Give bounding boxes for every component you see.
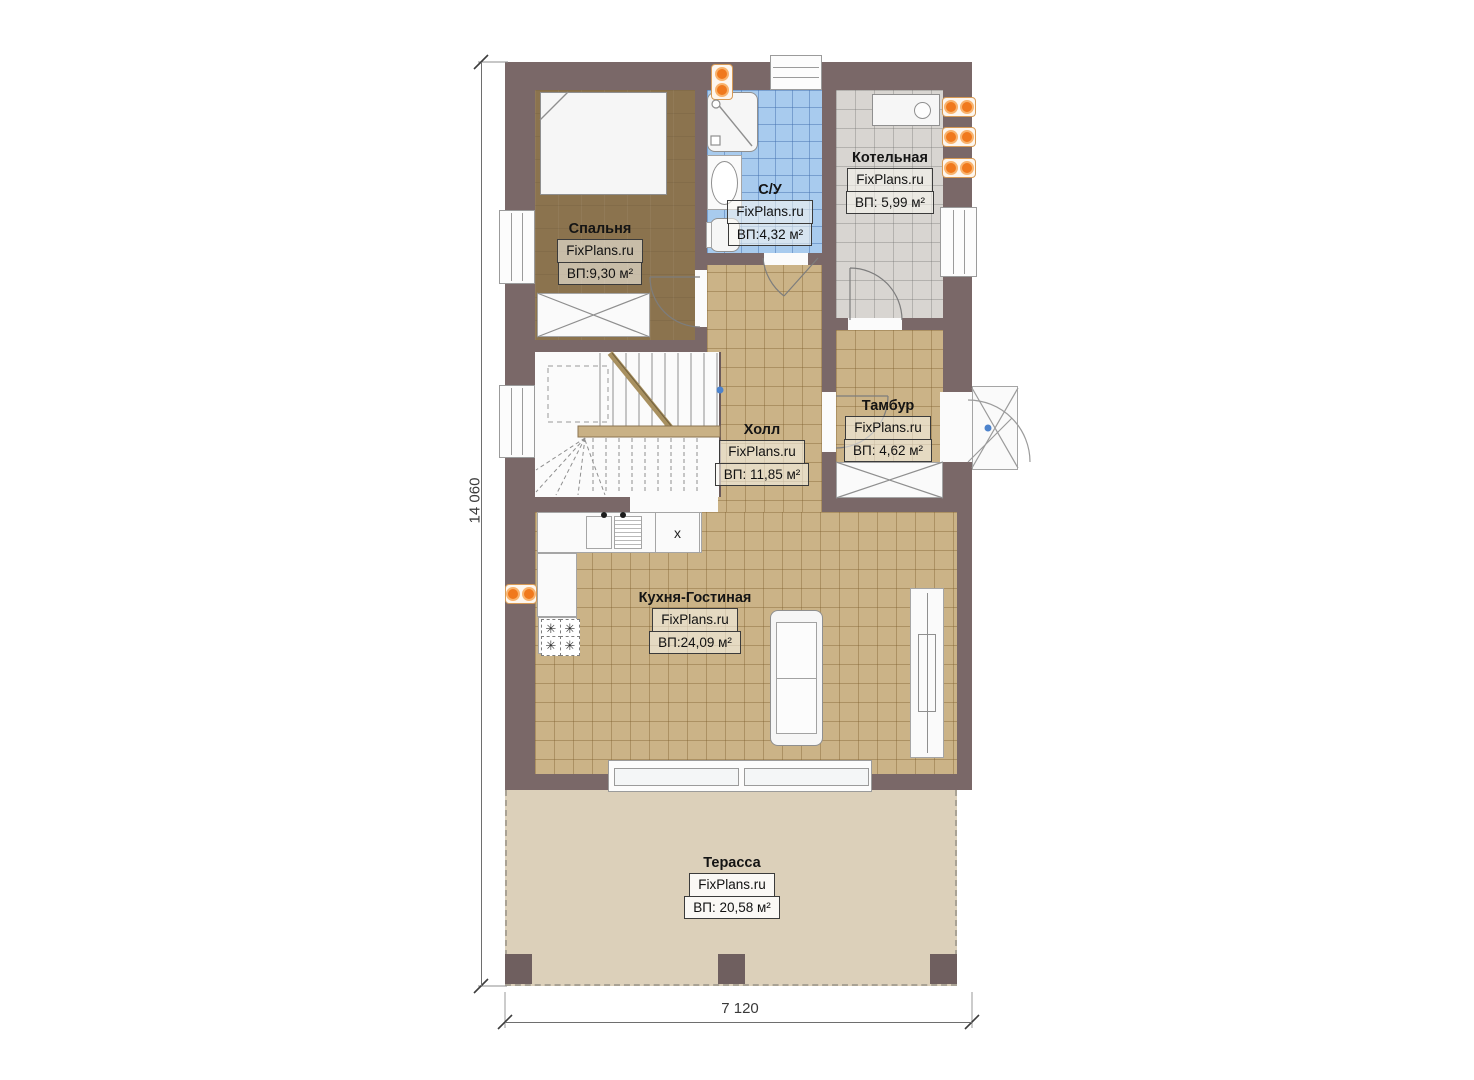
dimension-height-label: 14 060 — [467, 466, 484, 536]
window-bathroom-top — [770, 55, 822, 90]
terrace-post-right — [930, 954, 957, 984]
room-label-hall: Холл FixPlans.ru ВП: 11,85 м² — [697, 422, 827, 486]
kitchen-counter-left — [537, 553, 577, 617]
watermark: FixPlans.ru — [845, 416, 931, 440]
watermark: FixPlans.ru — [727, 200, 813, 224]
room-area: ВП: 11,85 м² — [715, 463, 810, 487]
sink-tap-dot — [601, 512, 607, 518]
watermark: FixPlans.ru — [719, 440, 805, 464]
hall-kitchen-opening — [630, 497, 718, 512]
sink-tap-dot — [620, 512, 626, 518]
wall-boiler-bottom-left — [836, 318, 848, 330]
entrance-porch-steps — [972, 386, 1018, 470]
boiler-door-opening — [848, 318, 902, 330]
burner-icon: ✳ — [541, 636, 561, 656]
room-label-tambour: Тамбур FixPlans.ru ВП: 4,62 м² — [823, 398, 953, 462]
room-name: Терасса — [703, 855, 761, 871]
room-area: ВП:4,32 м² — [728, 223, 812, 247]
wall-bathroom-bottom-left — [707, 253, 764, 265]
floor-plan-canvas: ✳ ✳ ✳ ✳ х — [0, 0, 1474, 1080]
room-area: ВП:9,30 м² — [558, 262, 642, 286]
kitchen-sink-drainer — [614, 516, 642, 549]
heater-icon — [942, 97, 976, 117]
wall-below-tambour — [822, 498, 972, 512]
shower-tray — [707, 92, 758, 152]
window-stairs — [499, 385, 535, 458]
wall-boiler-bottom-right — [902, 318, 943, 330]
bathroom-door-opening — [764, 253, 808, 265]
kitchen-appliance-x: х — [655, 512, 700, 553]
window-boiler — [940, 207, 977, 277]
watermark: FixPlans.ru — [689, 873, 775, 897]
wall-bedroom-bottom — [505, 340, 707, 352]
room-area: ВП: 5,99 м² — [846, 191, 934, 215]
watermark: FixPlans.ru — [557, 239, 643, 263]
radiator-tall — [910, 588, 944, 758]
room-area: ВП: 4,62 м² — [844, 439, 932, 463]
room-label-boiler: Котельная FixPlans.ru ВП: 5,99 м² — [825, 150, 955, 214]
watermark: FixPlans.ru — [652, 608, 738, 632]
dimension-line-horizontal — [505, 1022, 972, 1023]
room-area: ВП:24,09 м² — [649, 631, 741, 655]
heater-icon — [505, 584, 537, 604]
closet-tambour — [836, 462, 943, 498]
room-label-terrace: Терасса FixPlans.ru ВП: 20,58 м² — [647, 855, 817, 919]
room-name: Тамбур — [862, 398, 915, 414]
watermark: FixPlans.ru — [847, 168, 933, 192]
terrace-post-left — [505, 954, 532, 984]
room-name: Холл — [744, 422, 780, 438]
staircase-area — [535, 352, 720, 497]
room-name: Спальня — [569, 221, 632, 237]
wall-bathroom-bottom-right — [808, 253, 822, 265]
room-label-bedroom: Спальня FixPlans.ru ВП:9,30 м² — [525, 221, 675, 285]
heater-icon — [942, 127, 976, 147]
heater-icon — [711, 64, 733, 100]
wardrobe-bedroom — [537, 293, 650, 337]
room-label-kitchen: Кухня-Гостиная FixPlans.ru ВП:24,09 м² — [610, 590, 780, 654]
room-name: Котельная — [852, 150, 928, 166]
bedroom-door-opening — [695, 270, 707, 327]
wall-stairs-bottom — [505, 497, 630, 512]
dimension-width-label: 7 120 — [690, 1000, 790, 1017]
room-name: Кухня-Гостиная — [639, 590, 752, 606]
bed — [540, 92, 667, 195]
room-name: С/У — [758, 182, 782, 198]
terrace-post-center — [718, 954, 745, 984]
room-label-bathroom: С/У FixPlans.ru ВП:4,32 м² — [705, 182, 835, 246]
kitchen-sink-basin — [586, 516, 612, 549]
patio-glazed-doors — [608, 760, 872, 792]
room-area: ВП: 20,58 м² — [684, 896, 780, 920]
burner-icon: ✳ — [560, 636, 580, 656]
boiler-unit — [872, 94, 940, 126]
